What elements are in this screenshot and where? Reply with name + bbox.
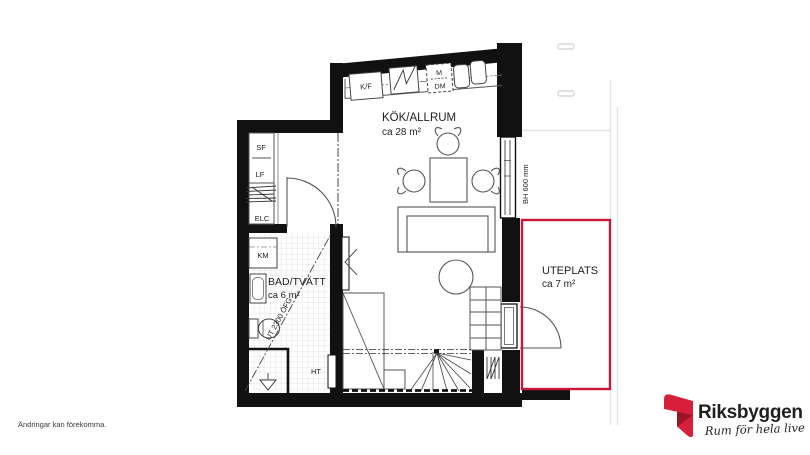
patio-label: UTEPLATS ca 7 m² bbox=[542, 265, 598, 290]
patio-highlight-outline bbox=[522, 220, 610, 389]
microwave-label: M bbox=[436, 70, 443, 77]
washing-machine: KM bbox=[249, 238, 277, 268]
bathroom-name: BAD/TVÄTT bbox=[268, 276, 326, 288]
loft-stairs bbox=[410, 349, 471, 391]
site-guide-lines bbox=[522, 44, 618, 425]
towel-dryer-label: HT bbox=[311, 367, 321, 376]
electrical-cabinet-label: ELC bbox=[255, 214, 270, 223]
bathroom-door bbox=[287, 177, 336, 227]
living-room-window bbox=[501, 137, 516, 218]
dining-table bbox=[430, 158, 467, 202]
fridge-freezer: K/F bbox=[349, 72, 383, 101]
linen-cabinet-label: LF bbox=[256, 170, 265, 179]
microwave-dishwasher: M DM bbox=[426, 63, 453, 93]
wall-niche bbox=[342, 237, 357, 290]
bathroom-area: ca 6 m² bbox=[268, 290, 300, 301]
washing-machine-label: KM bbox=[257, 251, 268, 260]
riksbyggen-logo-wordmark: Riksbyggen bbox=[698, 402, 803, 423]
floorplan-page: BH 600 mm UTEPLATS ca 7 m² K/F M DM KÖK/… bbox=[0, 0, 810, 455]
riksbyggen-logo: Riksbyggen Rum för hela livet bbox=[655, 390, 805, 448]
washbasin bbox=[250, 274, 266, 303]
riksbyggen-logo-graphic: Riksbyggen Rum för hela livet bbox=[655, 390, 805, 448]
riksbyggen-logo-mark bbox=[664, 394, 693, 437]
radiator bbox=[487, 357, 499, 379]
side-table bbox=[439, 260, 473, 294]
floorplan-drawing: BH 600 mm UTEPLATS ca 7 m² K/F M DM KÖK/… bbox=[0, 0, 810, 455]
main-room-area: ca 28 m² bbox=[382, 127, 422, 138]
tall-cabinet-label: SF bbox=[256, 143, 266, 152]
riksbyggen-logo-tagline: Rum för hela livet bbox=[704, 420, 805, 438]
hob bbox=[389, 65, 419, 94]
fridge-freezer-label: K/F bbox=[360, 82, 373, 92]
patio-area: ca 7 m² bbox=[542, 279, 576, 290]
sofa bbox=[398, 207, 495, 252]
wardrobe-shelving bbox=[470, 287, 501, 350]
loft-bed bbox=[343, 293, 405, 389]
main-room-name: KÖK/ALLRUM bbox=[382, 112, 456, 124]
dishwasher-label: DM bbox=[435, 83, 447, 91]
disclaimer-text: Ändringar kan förekomma. bbox=[18, 420, 106, 429]
patio-name: UTEPLATS bbox=[542, 265, 598, 277]
window-height-annotation: BH 600 mm bbox=[521, 164, 530, 204]
patio-door bbox=[501, 304, 561, 348]
